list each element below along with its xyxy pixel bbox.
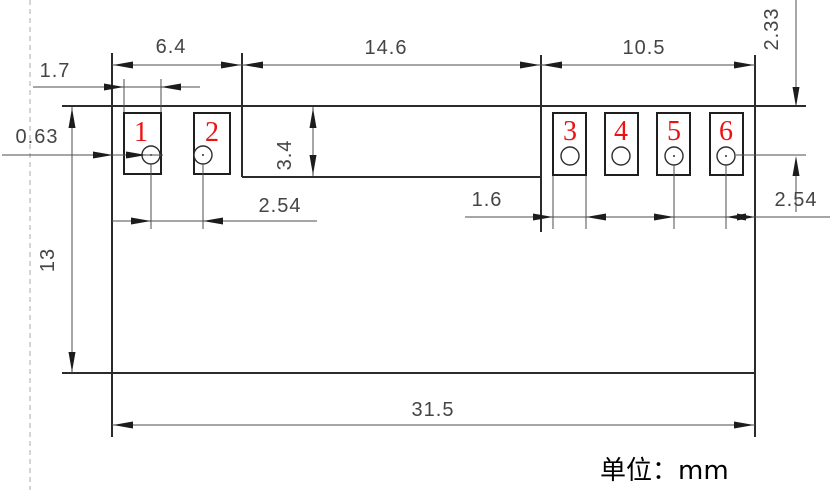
hole-4 [612, 147, 630, 165]
dimension-2.54-left: 2.54 [112, 195, 317, 225]
pad-number-2: 2 [205, 117, 219, 148]
pad-2: 2 [194, 113, 230, 174]
dim-13: 13 [37, 248, 59, 272]
dimension-3.4: 3.4 [274, 107, 317, 176]
pad-3: 3 [553, 113, 586, 175]
dim-14.6: 14.6 [365, 37, 408, 59]
dim-2.54-left: 2.54 [259, 195, 302, 217]
dim-2.54-right: 2.54 [775, 189, 818, 211]
pad-number-5: 5 [667, 116, 681, 147]
dimension-top-row: 6.4 14.6 10.5 [112, 36, 755, 69]
dim-1.7: 1.7 [40, 60, 71, 82]
dim-31.5: 31.5 [412, 399, 455, 421]
body-outline [62, 53, 806, 437]
pad-1: 1 [124, 113, 161, 174]
dimension-drawing: 1 2 3 4 5 6 [0, 0, 836, 490]
hole-3 [561, 147, 579, 165]
dimension-bottom-right-row: 1.6 2.54 [465, 189, 830, 221]
pad-4: 4 [605, 113, 638, 175]
dim-2.33: 2.33 [761, 8, 783, 51]
unit-note: 单位：mm [600, 456, 729, 486]
dim-1.6: 1.6 [472, 189, 503, 211]
pad-number-1: 1 [134, 117, 148, 148]
pad-number-3: 3 [563, 116, 577, 147]
dim-0.63: 0.63 [16, 126, 59, 148]
dimension-31.5: 31.5 [112, 399, 755, 429]
pad-number-6: 6 [719, 116, 733, 147]
pad-number-4: 4 [614, 116, 628, 147]
dim-3.4: 3.4 [274, 140, 296, 171]
dim-6.4: 6.4 [156, 36, 187, 58]
dim-10.5: 10.5 [623, 37, 666, 59]
